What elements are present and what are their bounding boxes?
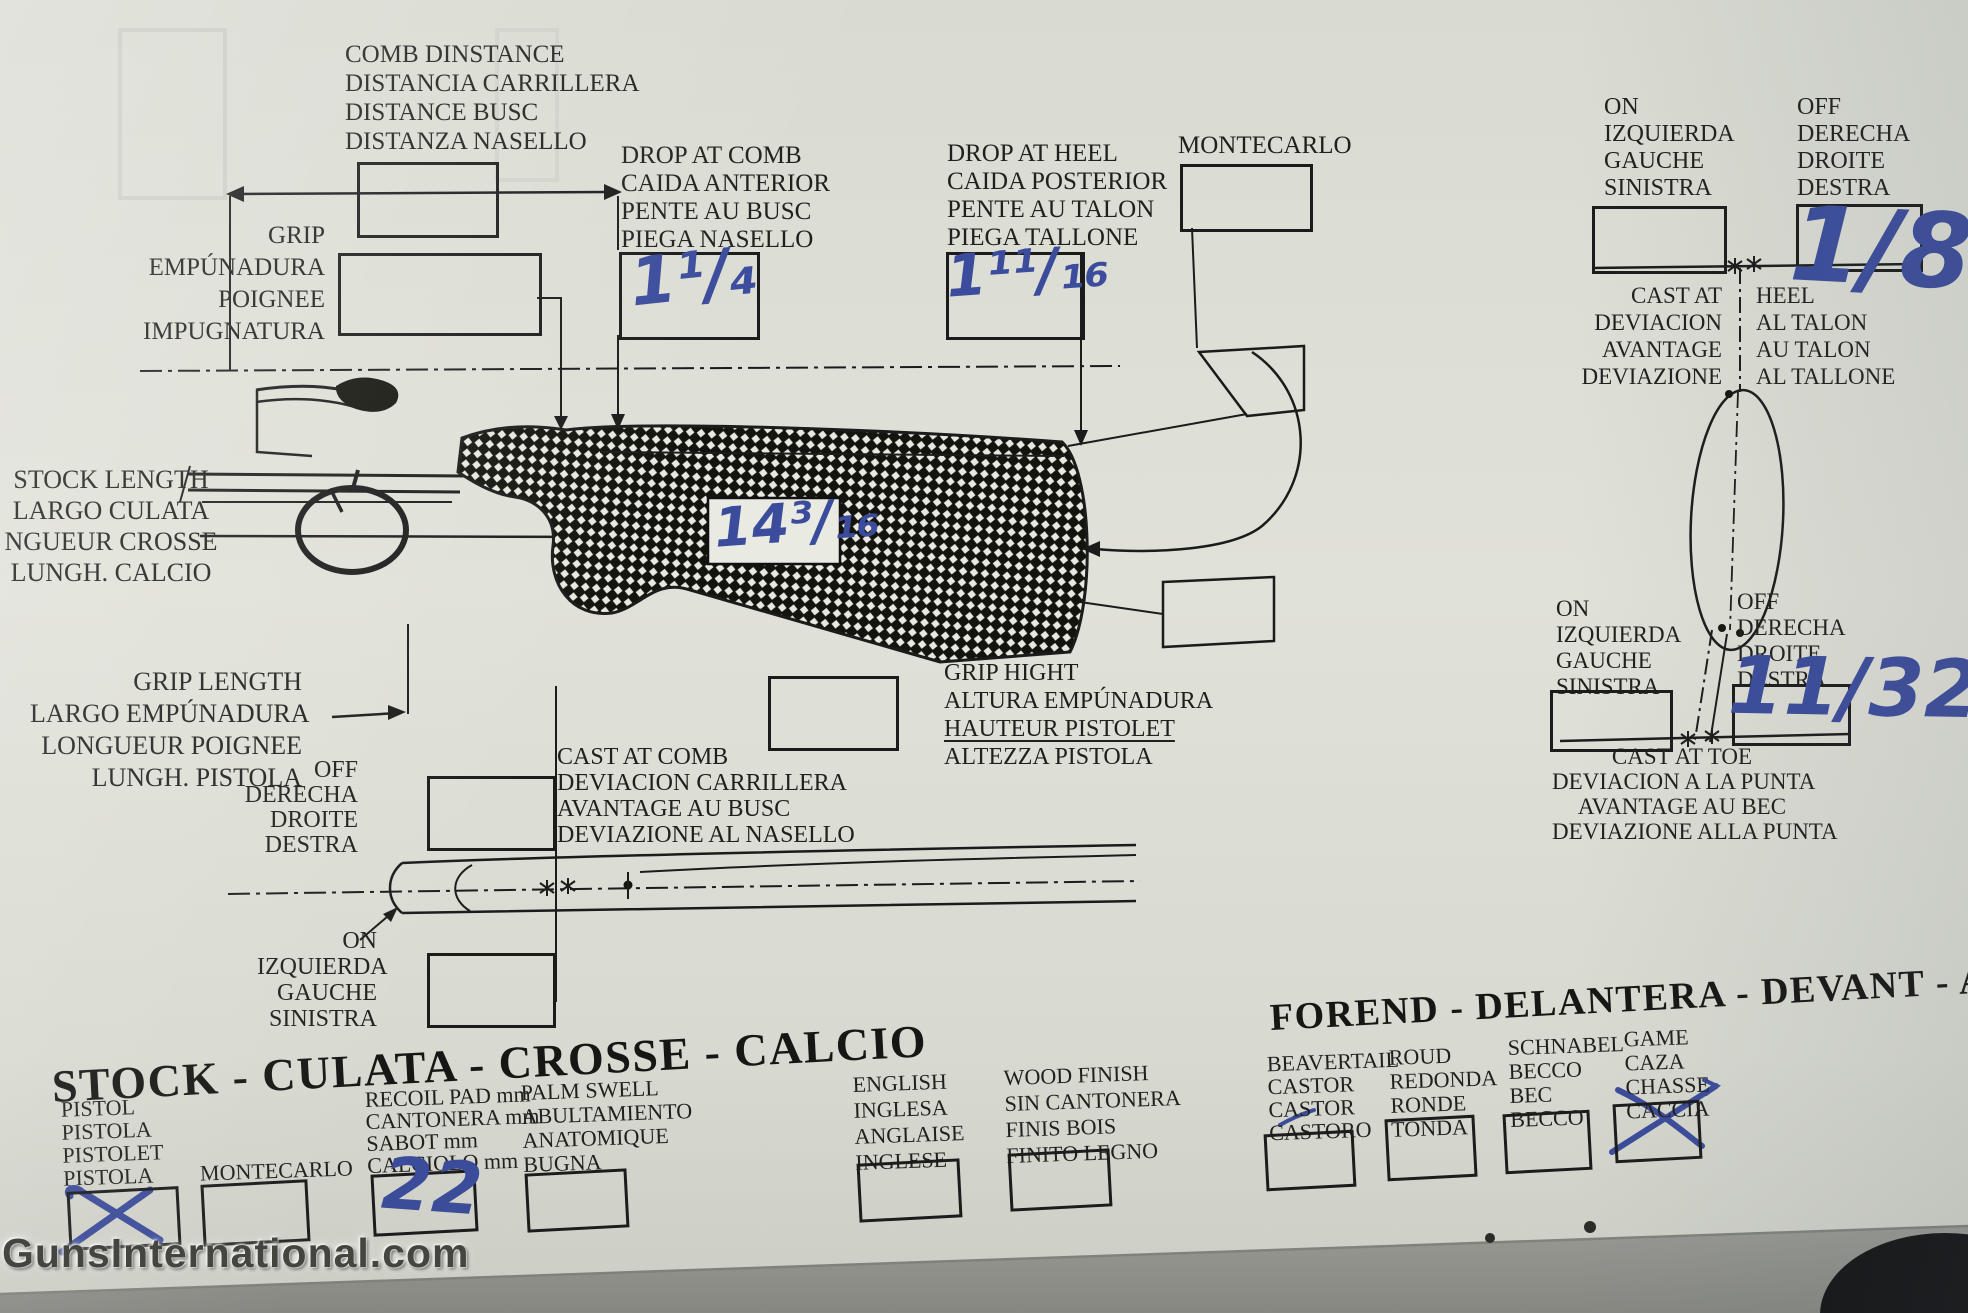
cast-toe-on-box[interactable]: [1550, 690, 1673, 752]
cast-at-heel-right-labels: HEELAL TALONAU TALONAL TALLONE: [1756, 282, 1895, 390]
grip-height-labels: GRIP HIGHTALTURA EMPÚNADURAHAUTEUR PISTO…: [944, 659, 1213, 771]
drop-at-heel-value: 1¹¹/₁₆: [944, 236, 1111, 305]
cast-comb-on-labels: ONIZQUIERDAGAUCHESINISTRA: [257, 928, 377, 1032]
gunstock-measurement-form: COMB DINSTANCEDISTANCIA CARRILLERADISTAN…: [0, 0, 1968, 1313]
grip-box[interactable]: [338, 253, 542, 336]
stock-option-wood-finish-box[interactable]: [1008, 1148, 1113, 1211]
recoil-pad-value: 22: [380, 1147, 485, 1226]
comb-distance-box[interactable]: [357, 162, 499, 238]
forend-option-round-box[interactable]: [1384, 1115, 1477, 1182]
stock-option-english-box[interactable]: [857, 1158, 963, 1222]
stock-option-pistol-labels: PISTOLPISTOLAPISTOLETPISTOLA: [60, 1094, 164, 1189]
watermark: GunsInternational.com: [2, 1230, 470, 1277]
cast-at-heel-left-labels: CAST ATDEVIACIONAVANTAGEDEVIAZIONE: [1570, 282, 1722, 390]
forend-option-game-box[interactable]: [1613, 1100, 1703, 1163]
stock-length-labels: STOCK LENGTHLARGO CULATANGUEUR CROSSELUN…: [0, 464, 222, 588]
cast-comb-off-labels: OFFDERECHADROITEDESTRA: [238, 758, 358, 858]
cast-at-comb-labels: CAST AT COMBDEVIACION CARRILLERAAVANTAGE…: [557, 744, 855, 848]
cast-comb-on-box[interactable]: [427, 953, 556, 1028]
montecarlo-top-label: MONTECARLO: [1178, 132, 1352, 161]
forend-option-beavertail-box[interactable]: [1264, 1130, 1357, 1192]
stock-length-value: 14³/₁₆: [712, 490, 881, 555]
stock-option-palm-swell-labels: PALM SWELLABULTAMIENTOANATOMIQUEBUGNA: [520, 1075, 694, 1177]
cast-at-toe-value: 11/32: [1727, 646, 1968, 730]
montecarlo-top-box[interactable]: [1180, 164, 1313, 232]
cast-comb-off-box[interactable]: [427, 776, 556, 851]
grip-labels: GRIPEMPÚNADURAPOIGNEEIMPUGNATURA: [70, 220, 325, 348]
drop-at-comb-value: 1¹/₄: [627, 237, 761, 316]
grip-height-box[interactable]: [768, 676, 899, 751]
stock-option-palm-swell-box[interactable]: [525, 1168, 630, 1232]
cast-heel-on-box[interactable]: [1592, 206, 1727, 274]
comb-distance-labels: COMB DINSTANCEDISTANCIA CARRILLERADISTAN…: [345, 40, 640, 156]
cast-heel-on-labels: ONIZQUIERDAGAUCHESINISTRA: [1604, 94, 1735, 202]
cast-toe-on-labels: ONIZQUIERDAGAUCHESINISTRA: [1556, 596, 1681, 700]
forend-option-schnabel-box[interactable]: [1502, 1110, 1592, 1174]
cast-at-toe-labels: CAST AT TOEDEVIACION A LA PUNTAAVANTAGE …: [1552, 744, 1812, 844]
